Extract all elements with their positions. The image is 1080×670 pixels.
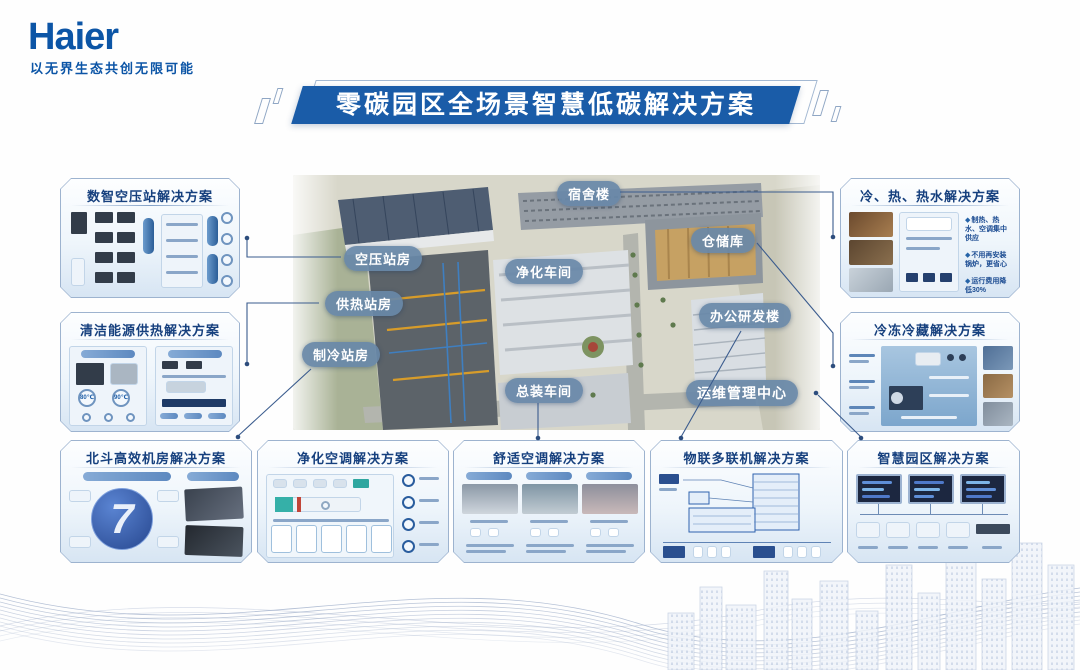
clean-zone	[321, 525, 342, 553]
product-icon	[470, 528, 481, 537]
haier-logo: Haier	[28, 16, 118, 59]
card-surface: 智慧园区解决方案	[848, 441, 1019, 562]
compressor	[95, 232, 113, 243]
product-icon	[590, 528, 601, 537]
card-smart-park-solution: 智慧园区解决方案	[847, 440, 1020, 563]
sub-label-pill	[526, 472, 572, 480]
corner-tag	[69, 536, 91, 548]
outdoor-unit	[663, 546, 685, 558]
bus-line	[860, 514, 1008, 515]
card-title: 数智空压站解决方案	[61, 186, 239, 205]
card-diagram	[856, 472, 1011, 554]
hall-photo	[849, 240, 893, 265]
bullet-icon: ◆	[965, 278, 970, 285]
node-box	[856, 522, 880, 538]
factory-photo	[522, 484, 578, 514]
bullet-text: 运行费用降低30%	[965, 278, 1006, 294]
clean-zone	[296, 525, 317, 553]
factory-photo	[462, 484, 518, 514]
compressor	[117, 232, 135, 243]
boiler-unit	[186, 361, 202, 369]
clean-zone	[346, 525, 367, 553]
card-title: 冷冻冷藏解决方案	[841, 320, 1019, 339]
rooftop-unit	[273, 479, 287, 488]
card-diagram: 80℃ 90℃	[69, 344, 231, 423]
slide: Haier 以无界生态共创无限可能 零碳园区全场景智慧低碳解决方案	[0, 0, 1080, 670]
compressor	[117, 212, 135, 223]
park-label-office-rd: 办公研发楼	[699, 303, 791, 328]
park-label-heating-station: 供热站房	[325, 291, 403, 316]
divider	[851, 205, 1009, 206]
product-icon	[548, 528, 559, 537]
solar-array	[976, 524, 1010, 534]
indoor-unit	[783, 546, 793, 558]
card-comfort-hvac-solution: 舒适空调解决方案	[453, 440, 645, 563]
bullet-icon: ◆	[965, 217, 970, 224]
card-iot-multi-split-solution: 物联多联机解决方案	[650, 440, 843, 563]
cabinet	[71, 258, 85, 286]
machine-room-photo	[184, 487, 244, 522]
card-surface: 物联多联机解决方案	[651, 441, 842, 562]
card-surface: 舒适空调解决方案	[454, 441, 644, 562]
title-banner: 零碳园区全场景智慧低碳解决方案	[291, 86, 801, 124]
compressor	[117, 272, 135, 283]
benefit-icon	[126, 413, 135, 422]
mini-pill	[160, 413, 178, 419]
card-diagram	[462, 472, 636, 554]
feature-icon	[402, 518, 415, 531]
piping-schematic	[161, 214, 203, 288]
slash-decoration	[273, 88, 284, 104]
product-icon	[608, 528, 619, 537]
sub-label-pill	[466, 472, 512, 480]
card-diagram	[266, 472, 440, 554]
outdoor-unit	[753, 546, 775, 558]
compressor	[95, 272, 113, 283]
benefit-bullets: ◆制热、热水、空调集中供应 ◆不用再安装锅炉，更省心 ◆运行费用降低30%	[965, 216, 1013, 303]
machine-room-photo	[184, 525, 243, 557]
card-title: 北斗高效机房解决方案	[61, 448, 251, 467]
indoor-unit	[693, 546, 703, 558]
divider	[858, 467, 1009, 468]
benefit-icon	[82, 413, 91, 422]
card-surface: 北斗高效机房解决方案 7	[61, 441, 251, 562]
chiller-unit	[353, 479, 369, 488]
divider	[71, 339, 229, 340]
unit	[906, 217, 952, 231]
card-title: 物联多联机解决方案	[651, 448, 842, 467]
product-icon	[530, 528, 541, 537]
hotel-photo	[849, 212, 893, 237]
pump	[923, 273, 935, 282]
card-air-compressor-solution: 数智空压站解决方案	[60, 178, 240, 298]
ahu-coil	[275, 497, 293, 512]
node-box	[946, 522, 970, 538]
rooftop-unit	[313, 479, 327, 488]
card-title: 舒适空调解决方案	[454, 448, 644, 467]
node-box	[886, 522, 910, 538]
system-schematic	[899, 212, 959, 292]
interior-photo	[849, 268, 893, 292]
mini-pill	[184, 413, 202, 419]
slash-decoration	[254, 98, 271, 124]
card-diagram	[659, 472, 834, 554]
valve-dot	[959, 354, 966, 361]
divider	[71, 205, 229, 206]
indoor-unit	[811, 546, 821, 558]
heat-pump-panel: 80℃ 90℃	[69, 346, 147, 426]
park-label-purification-workshop: 净化车间	[505, 259, 583, 284]
card-diagram	[849, 344, 1011, 423]
brand-tagline: 以无界生态共创无限可能	[30, 58, 195, 77]
sub-label-pill	[586, 472, 632, 480]
air-tank	[207, 254, 218, 284]
factory-photo	[582, 484, 638, 514]
park-label-om-center: 运维管理中心	[686, 380, 798, 406]
card-title: 净化空调解决方案	[258, 448, 448, 467]
rooftop-unit	[293, 479, 307, 488]
temp-badge: 90℃	[112, 389, 130, 407]
node-box	[916, 522, 940, 538]
park-label-dormitory: 宿舍楼	[557, 181, 621, 206]
card-purification-hvac-solution: 净化空调解决方案	[257, 440, 449, 563]
ahu-schematic	[266, 474, 394, 558]
divider	[851, 339, 1009, 340]
machine	[166, 381, 206, 393]
park-label-refrigeration-station: 制冷站房	[302, 342, 380, 367]
card-clean-energy-heating-solution: 清洁能源供热解决方案 80℃ 90℃	[60, 312, 240, 432]
bullet-text: 不用再安装锅炉，更省心	[965, 252, 1007, 268]
sub-label-pill	[81, 350, 135, 358]
card-title: 智慧园区解决方案	[848, 448, 1019, 467]
bullet-icon: ◆	[965, 252, 970, 259]
card-diagram	[69, 210, 231, 289]
card-surface: 数智空压站解决方案	[61, 179, 239, 297]
card-title: 清洁能源供热解决方案	[61, 320, 239, 339]
card-surface: 冷冻冷藏解决方案	[841, 313, 1019, 431]
card-surface: 净化空调解决方案	[258, 441, 448, 562]
card-title: 冷、热、热水解决方案	[841, 186, 1019, 205]
compressor-face	[891, 392, 903, 404]
divider	[268, 467, 438, 468]
pump	[940, 273, 952, 282]
feature-icon	[221, 254, 233, 266]
park-label-warehouse: 仓储库	[691, 228, 755, 253]
product-icon	[488, 528, 499, 537]
temp-badge: 80℃	[78, 389, 96, 407]
feature-icon	[402, 540, 415, 553]
dashboard-screen	[908, 474, 954, 504]
air-tank	[143, 218, 154, 254]
heat-pump-unit	[76, 363, 104, 385]
unit	[915, 352, 941, 366]
sub-label-pill	[187, 472, 239, 481]
divider	[71, 467, 241, 468]
page-title: 零碳园区全场景智慧低碳解决方案	[297, 86, 795, 124]
corner-tag	[69, 490, 91, 502]
benefit-icon	[104, 413, 113, 422]
indoor-unit	[797, 546, 807, 558]
compressor	[95, 212, 113, 223]
card-beidou-machine-room-solution: 北斗高效机房解决方案 7	[60, 440, 252, 563]
clean-zone	[271, 525, 292, 553]
mini-pill	[208, 413, 226, 419]
feature-icon	[402, 474, 415, 487]
coldroom-photo	[983, 346, 1013, 370]
fan-icon	[321, 501, 330, 510]
corner-tag	[157, 490, 179, 502]
outdoor-unit	[659, 474, 679, 484]
boiler-unit	[162, 361, 178, 369]
divider	[661, 467, 832, 468]
coldroom-photo	[983, 374, 1013, 398]
bullet-text: 制热、热水、空调集中供应	[965, 217, 1007, 242]
feature-icon	[221, 275, 233, 287]
corner-tag	[157, 536, 179, 548]
beidou-circle-glyph: 7	[91, 488, 153, 550]
building-outline-diagram	[681, 472, 813, 540]
control-cabinet	[71, 212, 87, 234]
feature-icon	[221, 233, 233, 245]
connection-line	[663, 542, 831, 543]
coldroom-photo	[983, 402, 1013, 426]
park-label-air-compressor: 空压站房	[344, 246, 422, 271]
rooftop-unit	[333, 479, 347, 488]
ahu-heater	[297, 497, 301, 512]
feature-icon	[221, 212, 233, 224]
valve-dot	[947, 354, 954, 361]
card-diagram: 7	[69, 472, 243, 554]
park-label-assembly-workshop: 总装车间	[505, 378, 583, 403]
card-freezing-refrigeration-solution: 冷冻冷藏解决方案	[840, 312, 1020, 432]
heating-schematic-panel	[155, 346, 233, 426]
compressor	[117, 252, 135, 263]
feature-icon	[402, 496, 415, 509]
info-band	[162, 399, 226, 407]
air-tank	[207, 216, 218, 246]
compressor	[95, 252, 113, 263]
dashboard-screen	[960, 474, 1006, 504]
card-surface: 冷、热、热水解决方案 ◆制热、热水、空调集中供应 ◆不用再安装锅炉，更省心	[841, 179, 1019, 297]
card-cooling-heating-hotwater-solution: 冷、热、热水解决方案 ◆制热、热水、空调集中供应 ◆不用再安装锅炉，更省心	[840, 178, 1020, 298]
sub-label-pill	[168, 350, 222, 358]
divider	[464, 467, 634, 468]
indoor-unit	[721, 546, 731, 558]
card-diagram: ◆制热、热水、空调集中供应 ◆不用再安装锅炉，更省心 ◆运行费用降低30%	[849, 210, 1011, 289]
pump	[906, 273, 918, 282]
dashboard-screen	[856, 474, 902, 504]
indoor-unit	[707, 546, 717, 558]
card-surface: 清洁能源供热解决方案 80℃ 90℃	[61, 313, 239, 431]
slash-decoration	[831, 106, 842, 122]
slash-decoration	[812, 90, 829, 116]
heat-pump-unit	[110, 363, 138, 385]
refrigeration-schematic	[881, 346, 977, 426]
clean-zone	[371, 525, 392, 553]
sub-label-pill	[83, 472, 171, 481]
